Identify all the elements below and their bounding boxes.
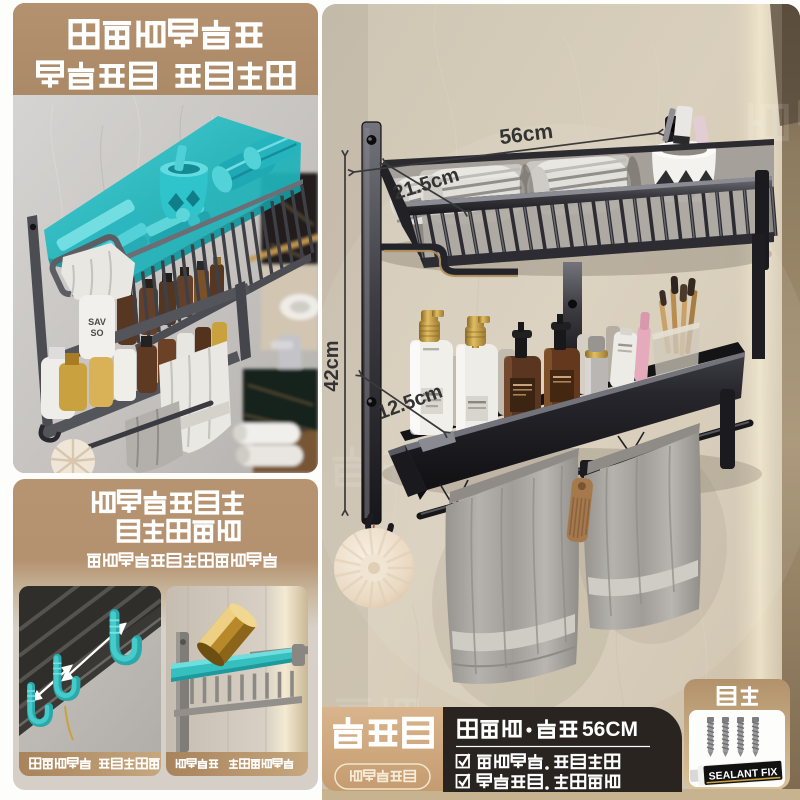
svg-text:SAV: SAV — [88, 317, 106, 327]
svg-text:SO: SO — [90, 328, 103, 338]
svg-text:56CM: 56CM — [582, 718, 638, 741]
svg-text:42cm: 42cm — [322, 340, 343, 391]
